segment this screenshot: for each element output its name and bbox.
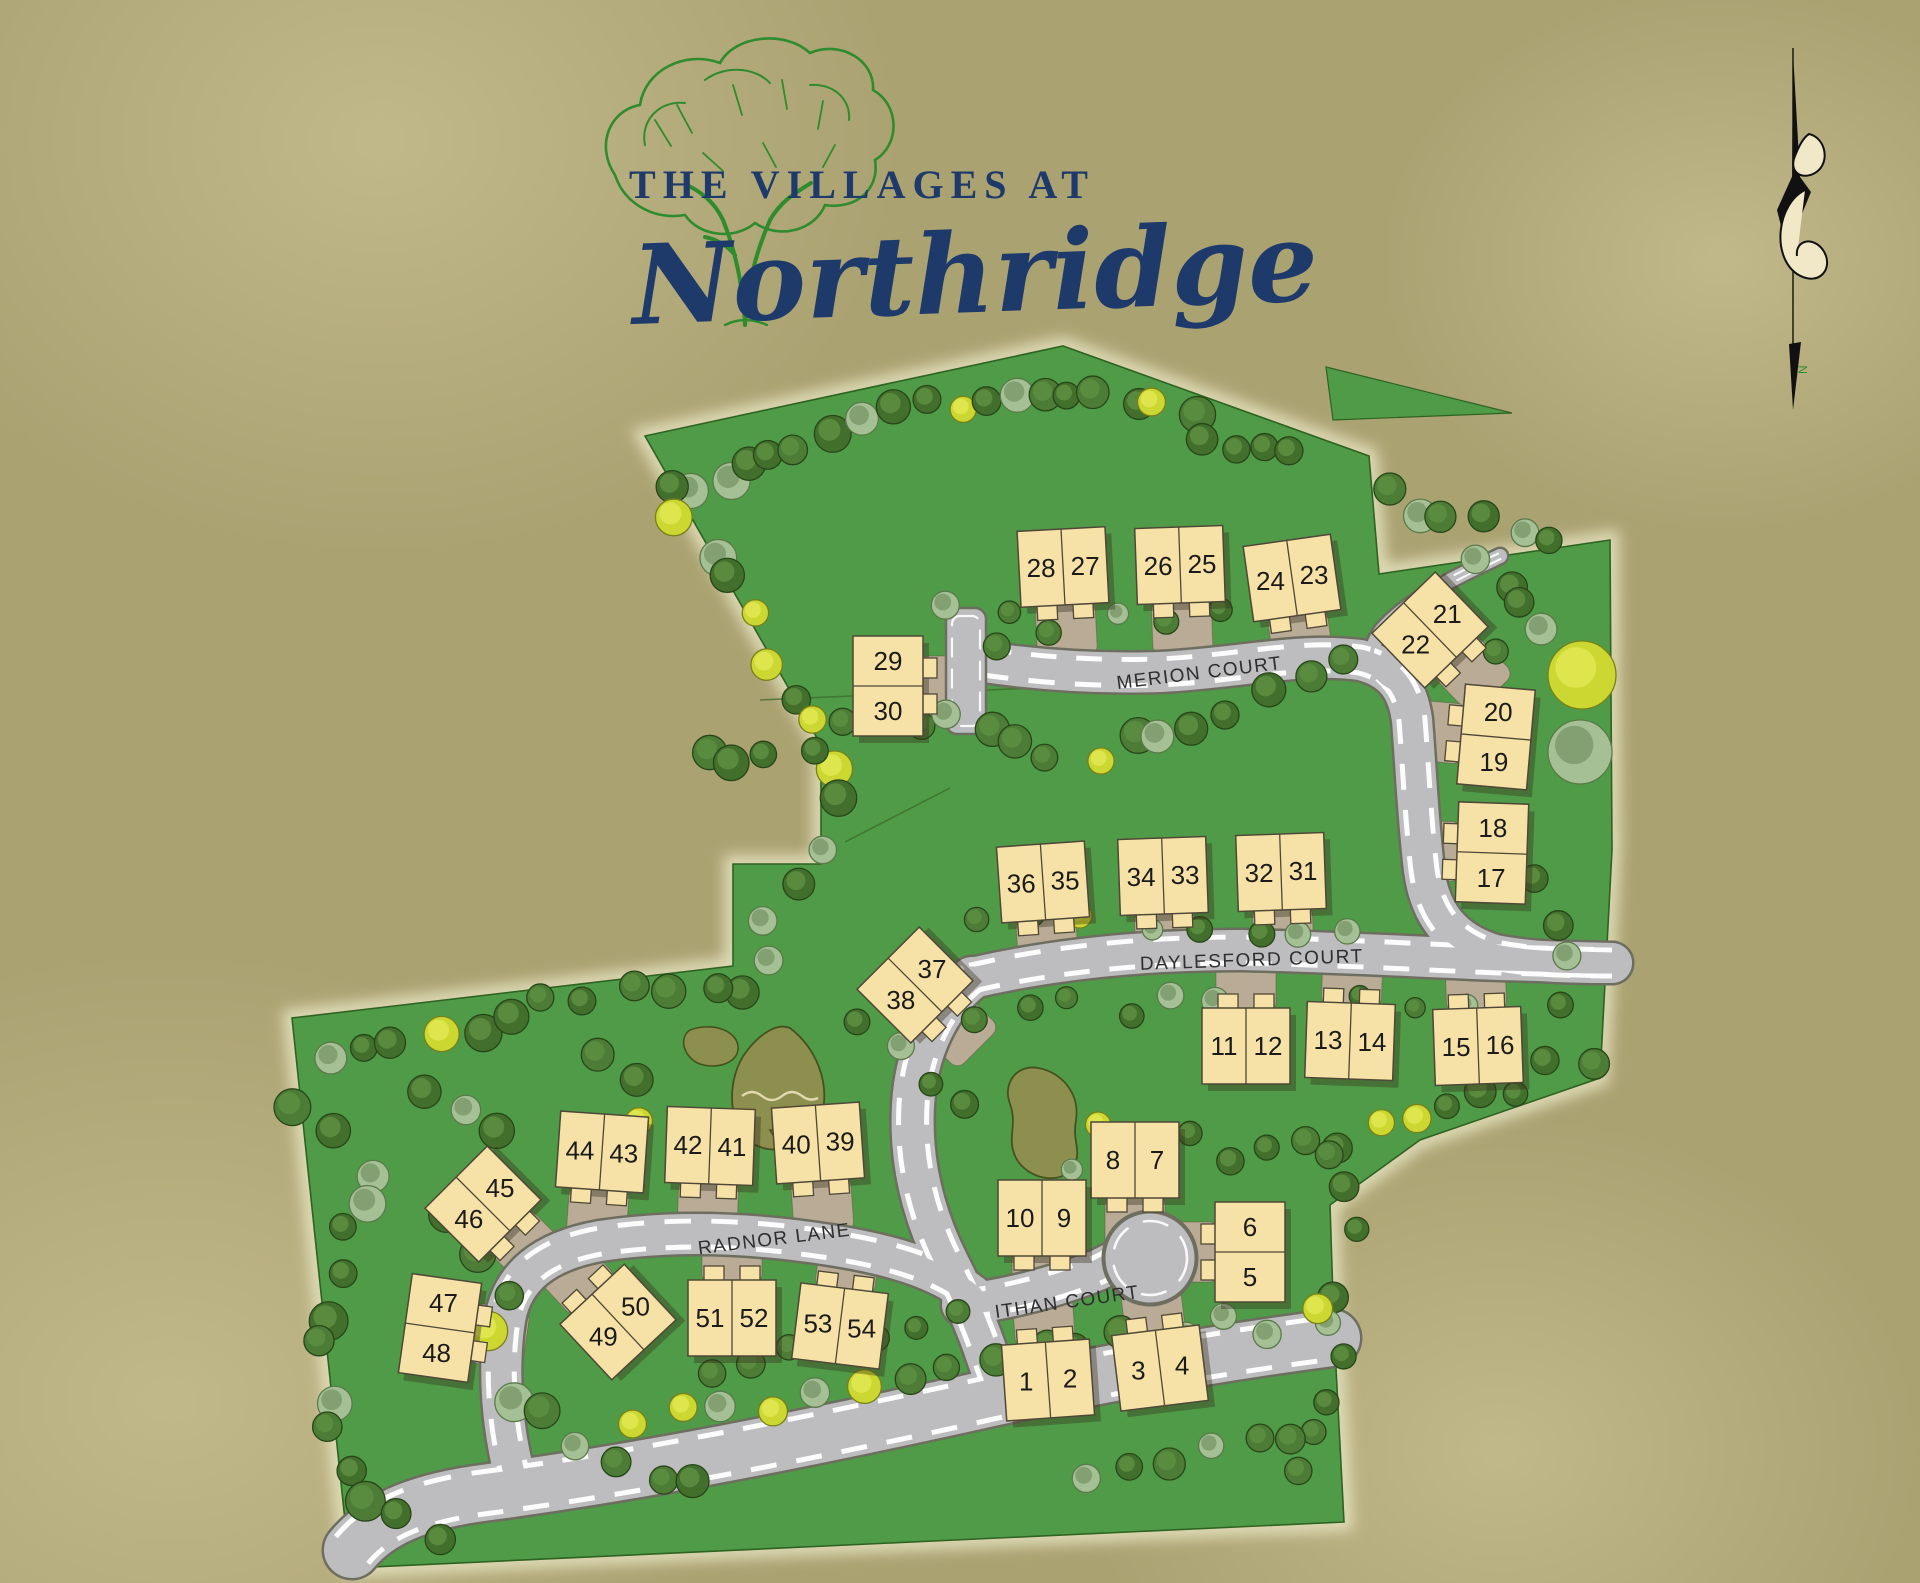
lot-number: 6 (1243, 1212, 1257, 1242)
logo-title-name: Northridge (627, 197, 1320, 350)
tree-icon (1153, 1448, 1185, 1480)
tree-icon (1031, 744, 1058, 771)
tree-icon (374, 1027, 405, 1058)
tree-icon (1345, 1217, 1369, 1241)
tree-canopy-highlight (1001, 603, 1014, 616)
lot-number: 32 (1245, 858, 1274, 888)
tree-canopy-highlight (762, 1400, 779, 1417)
tree-icon (895, 1364, 926, 1395)
tree-canopy-highlight (314, 1305, 337, 1328)
tree-canopy-highlight (307, 1328, 325, 1346)
tree-icon (1061, 1159, 1082, 1180)
lot-number: 41 (717, 1132, 746, 1162)
lot-number: 44 (565, 1135, 594, 1165)
tree-icon (1403, 1104, 1431, 1132)
tree-canopy-highlight (622, 1413, 639, 1430)
tree-canopy-highlight (332, 1262, 349, 1279)
lot-number: 28 (1027, 553, 1056, 583)
lot-building-44-43: 4443 (554, 1111, 654, 1207)
tree-icon (829, 708, 856, 735)
tree-icon (1141, 720, 1174, 753)
tree-canopy-highlight (333, 1216, 349, 1232)
tree-canopy-highlight (986, 635, 1002, 651)
lot-building-11-12: 1112 (1202, 994, 1296, 1091)
tree-icon (1531, 1046, 1559, 1074)
tree-icon (313, 1412, 342, 1441)
lot-number: 22 (1401, 630, 1430, 660)
tree-canopy-highlight (1299, 664, 1318, 683)
tree-icon (809, 836, 836, 863)
tree-canopy-highlight (757, 443, 774, 460)
tree-canopy-highlight (585, 1041, 605, 1061)
tree-icon (1331, 1344, 1356, 1369)
tree-icon (778, 435, 808, 465)
tree-canopy-highlight (1064, 1161, 1077, 1174)
tree-icon (568, 987, 596, 1015)
tree-canopy-highlight (1295, 1129, 1312, 1146)
lot-building-36-35: 3635 (996, 841, 1096, 937)
lot-number: 21 (1433, 599, 1462, 629)
tree-icon (561, 1432, 588, 1459)
lot-building-28-27: 2827 (1017, 526, 1116, 621)
tree-canopy-highlight (707, 976, 724, 993)
tree-canopy-highlight (1534, 1049, 1551, 1066)
tree-canopy-highlight (922, 1075, 936, 1089)
tree-icon (601, 1447, 631, 1477)
lot-number: 30 (874, 696, 903, 726)
tree-canopy-highlight (975, 389, 992, 406)
tree-canopy-highlight (1122, 1006, 1137, 1021)
tree-canopy-highlight (1428, 504, 1447, 523)
lot-building-26-25: 2625 (1135, 525, 1232, 618)
tree-canopy-highlight (384, 1501, 402, 1519)
tree-canopy-highlight (1201, 1435, 1216, 1450)
tree-canopy-highlight (1556, 944, 1573, 961)
tree-canopy-highlight (983, 1347, 1002, 1366)
lot-number: 51 (696, 1303, 725, 1333)
tree-canopy-highlight (736, 450, 756, 470)
tree-icon (1435, 1094, 1460, 1119)
tree-icon (1579, 1049, 1610, 1080)
tree-canopy-highlight (1004, 381, 1024, 401)
tree-canopy-highlight (781, 438, 799, 456)
tree-canopy-highlight (1407, 999, 1419, 1011)
tree-icon (381, 1499, 411, 1529)
tree-canopy-highlight (1190, 426, 1209, 445)
tree-icon (1536, 527, 1562, 553)
tree-icon (1120, 1004, 1144, 1028)
tree-icon (1368, 1110, 1394, 1136)
tree-icon (1157, 982, 1184, 1009)
tree-icon (315, 1042, 347, 1074)
tree-icon (494, 999, 529, 1034)
tree-canopy-highlight (1145, 723, 1165, 743)
tree-icon (961, 1007, 987, 1033)
tree-icon (676, 1465, 709, 1498)
tree-canopy-highlight (530, 986, 546, 1002)
tree-icon (1253, 1320, 1281, 1348)
lot-number: 54 (847, 1314, 876, 1344)
tree-icon (1077, 376, 1109, 408)
tree-canopy-highlight (1555, 726, 1593, 764)
tree-icon (1504, 588, 1534, 618)
tree-icon (742, 600, 768, 626)
tree-canopy-highlight (1318, 1143, 1335, 1160)
tree-icon (495, 1282, 523, 1310)
tree-canopy-highlight (954, 1093, 971, 1110)
tree-canopy-highlight (847, 1011, 862, 1026)
tree-icon (754, 946, 783, 975)
tree-canopy-highlight (1306, 1296, 1324, 1314)
tree-icon (753, 441, 782, 470)
tree-canopy-highlight (428, 1020, 449, 1041)
tree-icon (799, 706, 826, 733)
tree-canopy-highlight (498, 1284, 515, 1301)
tree-canopy-highlight (1347, 1219, 1361, 1233)
tree-icon (1296, 661, 1327, 692)
tree-icon (1544, 911, 1574, 941)
lot-number: 46 (454, 1204, 483, 1234)
tree-canopy-highlight (1539, 530, 1555, 546)
tree-canopy-highlight (411, 1078, 431, 1098)
lot-number: 38 (886, 985, 915, 1015)
tree-icon (713, 745, 749, 781)
tree-canopy-highlight (1183, 400, 1205, 422)
lot-number: 11 (1211, 1031, 1238, 1061)
tree-canopy-highlight (824, 783, 846, 805)
tree-canopy-highlight (934, 594, 951, 611)
tree-icon (1303, 1294, 1333, 1324)
lot-number: 37 (918, 954, 947, 984)
lot-number: 31 (1289, 856, 1318, 886)
tree-canopy-highlight (1464, 548, 1481, 565)
tree-icon (1548, 720, 1612, 784)
tree-icon (451, 1095, 481, 1125)
tree-canopy-highlight (1214, 704, 1231, 721)
tree-canopy-highlight (1337, 921, 1352, 936)
tree-canopy-highlight (851, 1373, 871, 1393)
tree-icon (1285, 1457, 1312, 1484)
tree-canopy-highlight (1119, 1456, 1135, 1472)
tree-icon (919, 1072, 943, 1096)
tree-canopy-highlight (1406, 1107, 1423, 1124)
tree-icon (951, 1091, 979, 1119)
tree-canopy-highlight (378, 1030, 397, 1049)
lot-number: 13 (1313, 1025, 1342, 1055)
tree-canopy-highlight (1288, 924, 1303, 939)
tree-canopy-highlight (316, 1415, 334, 1433)
tree-canopy-highlight (1256, 1323, 1273, 1340)
tree-icon (913, 385, 941, 413)
lot-number: 18 (1478, 813, 1507, 843)
tree-icon (1056, 987, 1078, 1009)
tree-canopy-highlight (1529, 616, 1548, 635)
lot-number: 25 (1188, 549, 1217, 579)
tree-icon (800, 1378, 829, 1407)
lot-number: 33 (1171, 860, 1200, 890)
lot-building-29-30: 2930 (853, 636, 937, 743)
tree-canopy-highlight (1551, 995, 1566, 1010)
tree-icon (820, 780, 856, 816)
tree-icon (1275, 437, 1303, 465)
tree-icon (705, 1391, 736, 1422)
tree-icon (964, 907, 988, 931)
tree-canopy-highlight (717, 748, 738, 769)
site-plan-page: MERION COURTDAYLESFORD COURTRADNOR LANEI… (0, 0, 1920, 1583)
pond-small (684, 1027, 738, 1066)
lot-building-34-33: 3433 (1118, 836, 1215, 929)
tree-canopy-highlight (340, 1459, 358, 1477)
tree-canopy-highlight (1002, 728, 1022, 748)
tree-canopy-highlight (469, 1018, 491, 1040)
tree-canopy-highlight (1021, 997, 1036, 1012)
tree-canopy-highlight (454, 1098, 472, 1116)
tree-canopy-highlight (785, 688, 802, 705)
tree-icon (316, 1114, 350, 1148)
tree-icon (1211, 701, 1239, 729)
tree-canopy-highlight (1288, 1460, 1304, 1476)
tree-icon (1483, 639, 1508, 664)
tree-canopy-highlight (979, 715, 1000, 736)
tree-icon (1252, 673, 1286, 707)
tree-canopy-highlight (1254, 436, 1270, 452)
lot-number: 43 (609, 1139, 638, 1169)
tree-icon (1186, 424, 1217, 455)
tree-canopy-highlight (953, 399, 969, 415)
lot-number: 19 (1479, 747, 1508, 777)
tree-icon (1329, 645, 1358, 674)
tree-icon (905, 1316, 928, 1339)
tree-icon (1329, 1172, 1359, 1202)
lot-number: 26 (1144, 551, 1173, 581)
tree-canopy-highlight (1249, 1427, 1266, 1444)
tree-canopy-highlight (752, 909, 769, 926)
tree-icon (1053, 382, 1080, 409)
tree-icon (330, 1214, 357, 1241)
tree-icon (652, 974, 686, 1008)
tree-canopy-highlight (1178, 715, 1198, 735)
tree-icon (1088, 748, 1114, 774)
tree-canopy-highlight (849, 405, 869, 425)
lot-building-8-7: 87 (1091, 1122, 1185, 1212)
tree-icon (655, 499, 692, 536)
tree-icon (1285, 922, 1311, 948)
tree-canopy-highlight (964, 1009, 979, 1024)
tree-icon (581, 1038, 614, 1071)
tree-canopy-highlight (696, 738, 717, 759)
tree-canopy-highlight (708, 1394, 726, 1412)
tree-canopy-highlight (1039, 622, 1054, 637)
tree-canopy-highlight (353, 1189, 375, 1211)
tree-canopy-highlight (680, 1468, 700, 1488)
tree-canopy-highlight (1371, 1112, 1387, 1128)
lot-number: 7 (1150, 1145, 1164, 1175)
tree-icon (1525, 613, 1557, 645)
tree-canopy-highlight (361, 1163, 380, 1182)
tree-canopy-highlight (1278, 439, 1295, 456)
tree-canopy-highlight (890, 1035, 906, 1051)
tree-canopy-highlight (907, 1319, 921, 1333)
tree-icon (748, 907, 777, 936)
tree-canopy-highlight (1334, 1346, 1349, 1361)
lot-number: 8 (1106, 1145, 1120, 1175)
lot-number: 53 (803, 1308, 832, 1338)
tree-icon (1251, 434, 1278, 461)
tree-icon (1246, 1424, 1274, 1452)
lot-number: 42 (673, 1130, 702, 1160)
tree-icon (750, 741, 776, 767)
lot-number: 14 (1357, 1027, 1386, 1057)
tree-canopy-highlight (832, 711, 848, 727)
tree-canopy-highlight (1160, 985, 1176, 1001)
tree-icon (946, 1300, 970, 1324)
lot-number: 49 (589, 1321, 618, 1351)
tree-canopy-highlight (880, 393, 900, 413)
tree-canopy-highlight (1226, 438, 1242, 454)
lot-number: 9 (1057, 1203, 1071, 1233)
lot-number: 1 (1019, 1367, 1033, 1397)
tree-icon (1405, 998, 1425, 1018)
tree-icon (1036, 620, 1061, 645)
tree-icon (1018, 995, 1043, 1020)
tree-icon (669, 1393, 697, 1421)
tree-canopy-highlight (655, 977, 676, 998)
tree-canopy-highlight (818, 419, 840, 441)
lot-building-42-41: 4241 (664, 1106, 761, 1199)
tree-canopy-highlight (278, 1092, 300, 1114)
tree-icon (698, 1360, 725, 1387)
tree-canopy-highlight (714, 561, 735, 582)
tree-canopy-highlight (1091, 750, 1107, 766)
tree-canopy-highlight (528, 1396, 549, 1417)
tree-icon (274, 1089, 311, 1126)
tree-icon (304, 1326, 334, 1356)
lot-number: 27 (1071, 551, 1100, 581)
tree-icon (527, 984, 554, 1011)
tree-icon (349, 1185, 386, 1222)
tree-icon (844, 1009, 870, 1035)
tree-canopy-highlight (1256, 676, 1276, 696)
tree-canopy-highlight (623, 974, 641, 992)
tree-canopy-highlight (624, 1066, 644, 1086)
tree-icon (1553, 942, 1581, 970)
tree-icon (802, 737, 829, 764)
tree-canopy-highlight (753, 744, 769, 760)
tree-canopy-highlight (1514, 521, 1531, 538)
tree-canopy-highlight (428, 1527, 446, 1545)
lot-number: 2 (1063, 1363, 1077, 1393)
tree-icon (656, 471, 688, 503)
tree-canopy-highlight (320, 1117, 341, 1138)
tree-canopy-highlight (805, 740, 821, 756)
tree-canopy-highlight (899, 1367, 917, 1385)
lot-building-6-5: 65 (1201, 1202, 1291, 1309)
tree-canopy-highlight (1141, 391, 1158, 408)
tree-icon (1223, 436, 1250, 463)
lot-number: 50 (621, 1291, 650, 1321)
tree-icon (1335, 919, 1360, 944)
tree-canopy-highlight (1058, 989, 1071, 1002)
tree-canopy-highlight (571, 990, 588, 1007)
tree-icon (524, 1393, 560, 1429)
tree-icon (620, 971, 650, 1001)
lot-number: 16 (1486, 1030, 1515, 1060)
tree-icon (1314, 1390, 1339, 1415)
tree-icon (972, 387, 1001, 416)
tree-icon (1138, 388, 1166, 416)
tree-icon (1461, 545, 1489, 573)
lot-building-51-52: 5152 (688, 1266, 782, 1363)
tree-canopy-highlight (1257, 1137, 1272, 1152)
lot-number: 45 (486, 1173, 515, 1203)
tree-canopy-highlight (1472, 504, 1491, 523)
tree-canopy-highlight (1056, 385, 1072, 401)
tree-canopy-highlight (1075, 1467, 1092, 1484)
lot-number: 23 (1300, 560, 1329, 590)
tree-icon (1511, 519, 1539, 547)
tree-canopy-highlight (1407, 502, 1427, 522)
lot-number: 34 (1127, 862, 1156, 892)
tree-canopy-highlight (1279, 1427, 1297, 1445)
lot-number: 3 (1131, 1356, 1145, 1386)
tree-canopy-highlight (483, 1116, 504, 1137)
tree-icon (1217, 1148, 1244, 1175)
tree-icon (620, 1064, 653, 1097)
lot-number: 39 (826, 1126, 855, 1156)
tree-icon (425, 1524, 455, 1554)
tree-canopy-highlight (701, 1362, 717, 1378)
tree-icon (710, 558, 744, 592)
tree-canopy-highlight (967, 910, 982, 925)
tree-canopy-highlight (498, 1002, 519, 1023)
tree-icon (846, 402, 879, 435)
tree-canopy-highlight (812, 839, 828, 855)
tree-icon (998, 725, 1031, 758)
tree-canopy-highlight (605, 1450, 623, 1468)
tree-canopy-highlight (1547, 913, 1565, 931)
lot-number: 52 (740, 1303, 769, 1333)
tree-icon (998, 601, 1020, 623)
tree-icon (933, 1354, 959, 1380)
tree-icon (1425, 501, 1456, 532)
tree-canopy-highlight (1304, 1422, 1319, 1437)
tree-icon (650, 1466, 678, 1494)
tree-canopy-highlight (1252, 924, 1267, 939)
tree-canopy-highlight (321, 1389, 342, 1410)
tree-canopy-highlight (653, 1469, 670, 1486)
tree-canopy-highlight (757, 949, 774, 966)
tree-canopy-highlight (1377, 476, 1396, 495)
tree-icon (1548, 992, 1574, 1018)
tree-canopy-highlight (1034, 747, 1050, 763)
tree-canopy-highlight (1157, 1451, 1176, 1470)
tree-canopy-highlight (1555, 647, 1596, 688)
tree-canopy-highlight (745, 602, 761, 618)
lot-number: 35 (1051, 865, 1080, 895)
logo-title-line1: THE VILLAGES AT (629, 162, 1095, 207)
tree-icon (1548, 641, 1616, 709)
tree-canopy-highlight (1508, 590, 1526, 608)
tree-icon (329, 1260, 357, 1288)
lot-number: 40 (782, 1130, 811, 1160)
lot-number: 29 (874, 646, 903, 676)
tree-canopy-highlight (350, 1485, 374, 1509)
tree-canopy-highlight (916, 388, 933, 405)
tree-icon (876, 390, 910, 424)
tree-icon (619, 1410, 647, 1438)
lot-number: 36 (1007, 869, 1036, 899)
tree-canopy-highlight (936, 1357, 952, 1373)
